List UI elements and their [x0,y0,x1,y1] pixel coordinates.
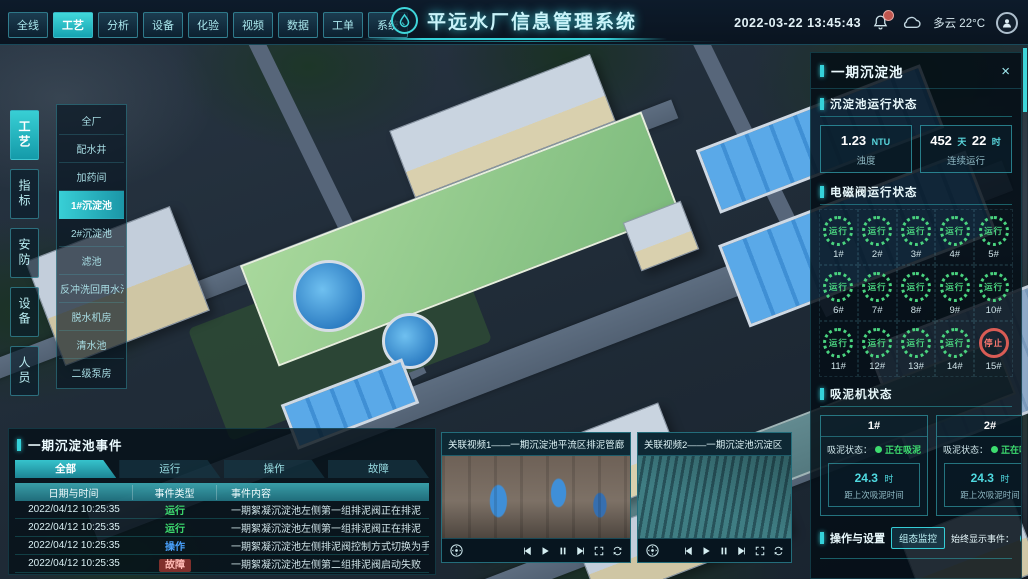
mud-time-label: 距上次吸泥时间 [947,489,1022,501]
mud-time-unit: 时 [1000,474,1009,484]
valve-id: 14# [936,361,973,372]
accent-bar [820,532,824,544]
events-tab-operate[interactable]: 操作 [224,460,325,478]
skip-forward-icon[interactable] [737,546,747,556]
scrollbar-thumb[interactable] [1023,48,1027,112]
valve-cell: 运行6# [819,265,858,321]
close-icon[interactable]: × [999,64,1012,79]
panel-scrollbar[interactable] [1023,48,1027,573]
app-root: 全线 工艺 分析 设备 化验 视频 数据 工单 系统 平远水厂信息管理系统 20… [0,0,1028,579]
events-tab-all[interactable]: 全部 [15,460,116,478]
events-panel: 一期沉淀池事件 全部 运行 操作 故障 日期与时间 事件类型 事件内容 2022… [8,428,436,575]
accent-bar [820,98,824,110]
valve-cell: 停止15# [974,321,1013,377]
valve-status: 运行 [945,225,964,237]
events-tab-fault[interactable]: 故障 [328,460,429,478]
tab-quanxian[interactable]: 全线 [8,12,48,38]
valve-id: 15# [975,361,1012,372]
valve-status: 运行 [868,225,887,237]
valve-cell: 运行2# [858,209,897,265]
top-bar: 全线 工艺 分析 设备 化验 视频 数据 工单 系统 平远水厂信息管理系统 20… [0,0,1028,45]
fullscreen-icon[interactable] [755,546,765,556]
page-title: 平远水厂信息管理系统 [427,7,637,34]
menu-item-quanchang[interactable]: 全厂 [59,107,124,135]
uptime-card: 452 天 22 时 连续运行 [920,125,1012,173]
tab-huayan[interactable]: 化验 [188,12,228,38]
accent-bar [820,186,824,198]
valve-status: 运行 [906,225,925,237]
mud-time-unit: 时 [884,474,893,484]
mud-time-line: 24.3 时 [947,469,1022,487]
app-title-block: 平远水厂信息管理系统 [391,7,637,34]
valve-id: 13# [898,361,935,372]
notifications-button[interactable] [872,14,889,31]
event-content: 一期絮凝沉淀池左侧第二组排泥阀启动失败 [217,556,429,571]
valve-cell: 运行8# [897,265,936,321]
status-dot-icon [991,446,998,453]
valve-cell: 运行3# [897,209,936,265]
valve-status-grid: 运行1# 运行2# 运行3# 运行4# 运行5# 运行6# 运行7# 运行8# … [811,205,1021,379]
detail-panel-header: 一期沉淀池 × [811,53,1021,89]
turbidity-value-line: 1.23 NTU [823,132,909,150]
section-title: 电磁阀运行状态 [830,184,918,200]
video-panel-2: 关联视频2——一期沉淀池沉淀区 [637,432,792,563]
skip-back-icon[interactable] [522,546,532,556]
video-1-controls [442,538,630,562]
valve-gauge: 运行 [901,216,931,246]
valve-cell: 运行9# [935,265,974,321]
run-status-cards: 1.23 NTU 浊度 452 天 22 时 连续运行 [811,117,1021,177]
events-table-body: 2022/04/12 10:25:35 运行 一期絮凝沉淀池左侧第一组排泥阀正在… [15,501,429,573]
detail-panel: 一期沉淀池 × 沉淀池运行状态 1.23 NTU 浊度 452 天 22 时 [810,52,1022,579]
loop-icon[interactable] [773,546,784,556]
mud-status-value: 正在吸泥 [885,443,921,456]
event-time: 2022/04/12 10:25:35 [15,522,133,533]
events-title: 一期沉淀池事件 [28,435,123,454]
menu-item-erjibengfang[interactable]: 二级泵房 [59,359,124,386]
video-2-feed[interactable] [638,456,791,538]
process-menu: 全厂 配水井 加药间 1#沉淀池 2#沉淀池 滤池 反冲洗回用水池 脱水机房 清… [56,104,127,389]
events-filter-tabs: 全部 运行 操作 故障 [9,459,435,478]
uptime-days-unit: 天 [957,137,966,147]
mud-time-label: 距上次吸泥时间 [831,489,917,501]
valve-cell: 运行14# [935,321,974,377]
valve-status: 运行 [984,281,1003,293]
valve-id: 8# [898,305,935,316]
event-time: 2022/04/12 10:25:35 [15,558,133,569]
mud-machine-id: 2# [937,416,1022,437]
tab-shipin[interactable]: 视频 [233,12,273,38]
turbidity-unit: NTU [872,137,891,147]
left-category-tabs: 工艺 指标 安防 设备 人员 [10,110,39,396]
loop-icon[interactable] [612,546,623,556]
detail-panel-title: 一期沉淀池 [831,61,992,81]
mud-time-value: 24.3 [971,471,994,485]
valve-id: 11# [820,361,857,372]
valve-status: 运行 [868,281,887,293]
menu-item-tuoshuijifang[interactable]: 脱水机房 [59,303,124,331]
section-title: 吸泥机状态 [830,386,893,402]
valve-gauge: 运行 [940,328,970,358]
uptime-value-line: 452 天 22 时 [923,132,1009,150]
valve-status: 运行 [829,281,848,293]
valve-id: 12# [859,361,896,372]
col-type: 事件类型 [133,485,217,500]
mud-time-box: 24.3 时 距上次吸泥时间 [828,463,920,507]
section-header-run-status: 沉淀池运行状态 [820,96,1012,117]
uptime-label: 连续运行 [923,153,1009,167]
valve-gauge: 运行 [823,328,853,358]
mud-status-label: 吸泥状态： [943,443,988,456]
valve-gauge: 运行 [862,216,892,246]
valve-id: 9# [936,305,973,316]
valve-id: 3# [898,249,935,260]
tab-gongdan[interactable]: 工单 [323,12,363,38]
event-type-badge: 故障 [159,559,191,572]
mud-status-line: 吸泥状态： 正在吸泥 [821,437,927,458]
valve-cell: 运行5# [974,209,1013,265]
valve-cell: 运行1# [819,209,858,265]
valve-status: 运行 [868,337,887,349]
vtab-anfang[interactable]: 安防 [10,228,39,278]
tab-shebei[interactable]: 设备 [143,12,183,38]
tab-shuju[interactable]: 数据 [278,12,318,38]
event-type: 操作 [133,538,217,553]
col-datetime: 日期与时间 [15,485,133,500]
event-type: 运行 [133,502,217,517]
col-content: 事件内容 [217,485,429,500]
events-table-header: 日期与时间 事件类型 事件内容 [15,483,429,501]
valve-cell: 运行7# [858,265,897,321]
mud-machine-id: 1# [821,416,927,437]
event-content: 一期絮凝沉淀池左侧排泥阀控制方式切换为手动 [217,538,429,553]
accent-bar [820,388,824,400]
event-type-badge: 操作 [165,542,185,553]
menu-item-2-chendianchi[interactable]: 2#沉淀池 [59,219,124,247]
mud-time-line: 24.3 时 [831,469,917,487]
valve-gauge: 运行 [823,216,853,246]
always-show-events-toggle[interactable] [1020,532,1022,545]
section-header-valves: 电磁阀运行状态 [820,184,1012,205]
tab-gongyi[interactable]: 工艺 [53,12,93,38]
skip-forward-icon[interactable] [576,546,586,556]
section-header-mud: 吸泥机状态 [820,386,1012,407]
valve-status: 运行 [906,337,925,349]
valve-id: 4# [936,249,973,260]
uptime-hours: 22 [972,133,986,148]
uptime-hours-unit: 时 [992,137,1001,147]
event-type-badge: 运行 [165,506,185,517]
valve-status: 运行 [906,281,925,293]
valve-status: 运行 [945,281,964,293]
mud-status-line: 吸泥状态： 正在吸泥 [937,437,1022,458]
turbidity-label: 浊度 [823,153,909,167]
valve-status: 运行 [945,337,964,349]
vtab-shebei[interactable]: 设备 [10,287,39,337]
video-1-feed[interactable] [442,456,630,538]
valve-gauge: 运行 [979,216,1009,246]
section-title: 沉淀池运行状态 [830,96,918,112]
uptime-days: 452 [930,133,952,148]
top-right-cluster: 2022-03-22 13:45:43 多云 22°C [734,0,1018,45]
playback-controls [683,546,784,556]
mud-time-value: 24.3 [855,471,878,485]
turbidity-card: 1.23 NTU 浊度 [820,125,912,173]
skip-back-icon[interactable] [683,546,693,556]
weather-cloud-icon [900,15,922,30]
operations-title: 操作与设置 [830,530,885,546]
event-type-badge: 运行 [165,524,185,535]
round-pool [382,313,438,369]
valve-status: 运行 [984,225,1003,237]
weather-label: 多云 22°C [933,15,985,31]
main-nav-tabs: 全线 工艺 分析 设备 化验 视频 数据 工单 系统 [8,12,408,38]
valve-cell: 运行13# [897,321,936,377]
pause-icon[interactable] [719,546,729,556]
user-avatar-button[interactable] [996,12,1018,34]
video-2-title: 关联视频2——一期沉淀池沉淀区 [638,433,791,456]
valve-cell: 运行12# [858,321,897,377]
accent-bar [820,65,824,77]
vtab-zhibiao[interactable]: 指标 [10,169,39,219]
mud-status-label: 吸泥状态： [827,443,872,456]
video-1-title: 关联视频1——一期沉淀池平流区排泥管廊 [442,433,630,456]
video-2-controls [638,538,791,562]
tab-fenxi[interactable]: 分析 [98,12,138,38]
always-show-events-label: 始终显示事件： [951,532,1014,545]
water-drop-logo-icon [391,7,418,34]
vtab-gongyi[interactable]: 工艺 [10,110,39,160]
valve-gauge: 运行 [901,328,931,358]
notification-badge [883,10,894,21]
valve-gauge: 运行 [940,216,970,246]
valve-cell: 运行10# [974,265,1013,321]
event-time: 2022/04/12 10:25:35 [15,540,133,551]
valve-gauge: 运行 [979,272,1009,302]
valve-gauge: 停止 [979,328,1009,358]
table-row[interactable]: 2022/04/12 10:25:35 故障 一期絮凝沉淀池左侧第二组排泥阀启动… [15,555,429,573]
round-pool [293,260,365,332]
valve-cell: 运行4# [935,209,974,265]
menu-item-peishuijing[interactable]: 配水井 [59,135,124,163]
valve-id: 10# [975,305,1012,316]
valve-gauge: 运行 [862,272,892,302]
playback-controls [522,546,623,556]
event-time: 2022/04/12 10:25:35 [15,504,133,515]
event-type: 运行 [133,520,217,535]
valve-status: 运行 [829,337,848,349]
datetime-label: 2022-03-22 13:45:43 [734,16,861,30]
mud-machine-card-1: 1# 吸泥状态： 正在吸泥 24.3 时 距上次吸泥时间 [820,415,928,516]
event-content: 一期絮凝沉淀池左侧第一组排泥阀正在排泥 [217,520,429,535]
valve-id: 6# [820,305,857,316]
mud-machine-card-2: 2# 吸泥状态： 正在吸泥 24.3 时 距上次吸泥时间 [936,415,1022,516]
play-icon[interactable] [540,546,550,556]
turbidity-value: 1.23 [841,133,866,148]
menu-item-lvchi[interactable]: 滤池 [59,247,124,275]
event-content: 一期絮凝沉淀池左侧第一组排泥阀正在排泥 [217,502,429,517]
table-row[interactable]: 2022/04/12 10:25:35 操作 一期絮凝沉淀池左侧排泥阀控制方式切… [15,537,429,555]
valve-gauge: 运行 [823,272,853,302]
ptz-pad-icon[interactable] [645,543,660,558]
video-panel-1: 关联视频1——一期沉淀池平流区排泥管廊 [441,432,631,563]
scada-monitor-button[interactable]: 组态监控 [891,527,945,549]
ptz-pad-icon[interactable] [449,543,464,558]
accent-bar [17,439,21,451]
valve-id: 2# [859,249,896,260]
valve-id: 1# [820,249,857,260]
menu-item-1-chendianchi[interactable]: 1#沉淀池 [59,191,124,219]
valve-cell: 运行11# [819,321,858,377]
valve-id: 7# [859,305,896,316]
valve-id: 5# [975,249,1012,260]
mud-machine-cards: 1# 吸泥状态： 正在吸泥 24.3 时 距上次吸泥时间 2# 吸泥状态 [811,407,1021,518]
event-type: 故障 [133,556,217,571]
table-row[interactable]: 2022/04/12 10:25:35 运行 一期絮凝沉淀池左侧第一组排泥阀正在… [15,501,429,519]
events-tab-run[interactable]: 运行 [119,460,220,478]
fullscreen-icon[interactable] [594,546,604,556]
valve-status: 运行 [829,225,848,237]
operations-settings-row: 操作与设置 组态监控 始终显示事件： [820,527,1012,559]
menu-item-fanchongxi[interactable]: 反冲洗回用水池 [59,275,124,303]
pause-icon[interactable] [558,546,568,556]
mud-status-value: 正在吸泥 [1001,443,1022,456]
valve-gauge: 运行 [940,272,970,302]
table-row[interactable]: 2022/04/12 10:25:35 运行 一期絮凝沉淀池左侧第一组排泥阀正在… [15,519,429,537]
events-header: 一期沉淀池事件 [9,429,435,459]
vtab-renyuan[interactable]: 人员 [10,346,39,396]
valve-gauge: 运行 [862,328,892,358]
valve-gauge: 运行 [901,272,931,302]
menu-item-jiayaojian[interactable]: 加药间 [59,163,124,191]
play-icon[interactable] [701,546,711,556]
valve-status: 停止 [984,337,1003,349]
mud-time-box: 24.3 时 距上次吸泥时间 [944,463,1022,507]
status-dot-icon [875,446,882,453]
menu-item-qingshuichi[interactable]: 清水池 [59,331,124,359]
